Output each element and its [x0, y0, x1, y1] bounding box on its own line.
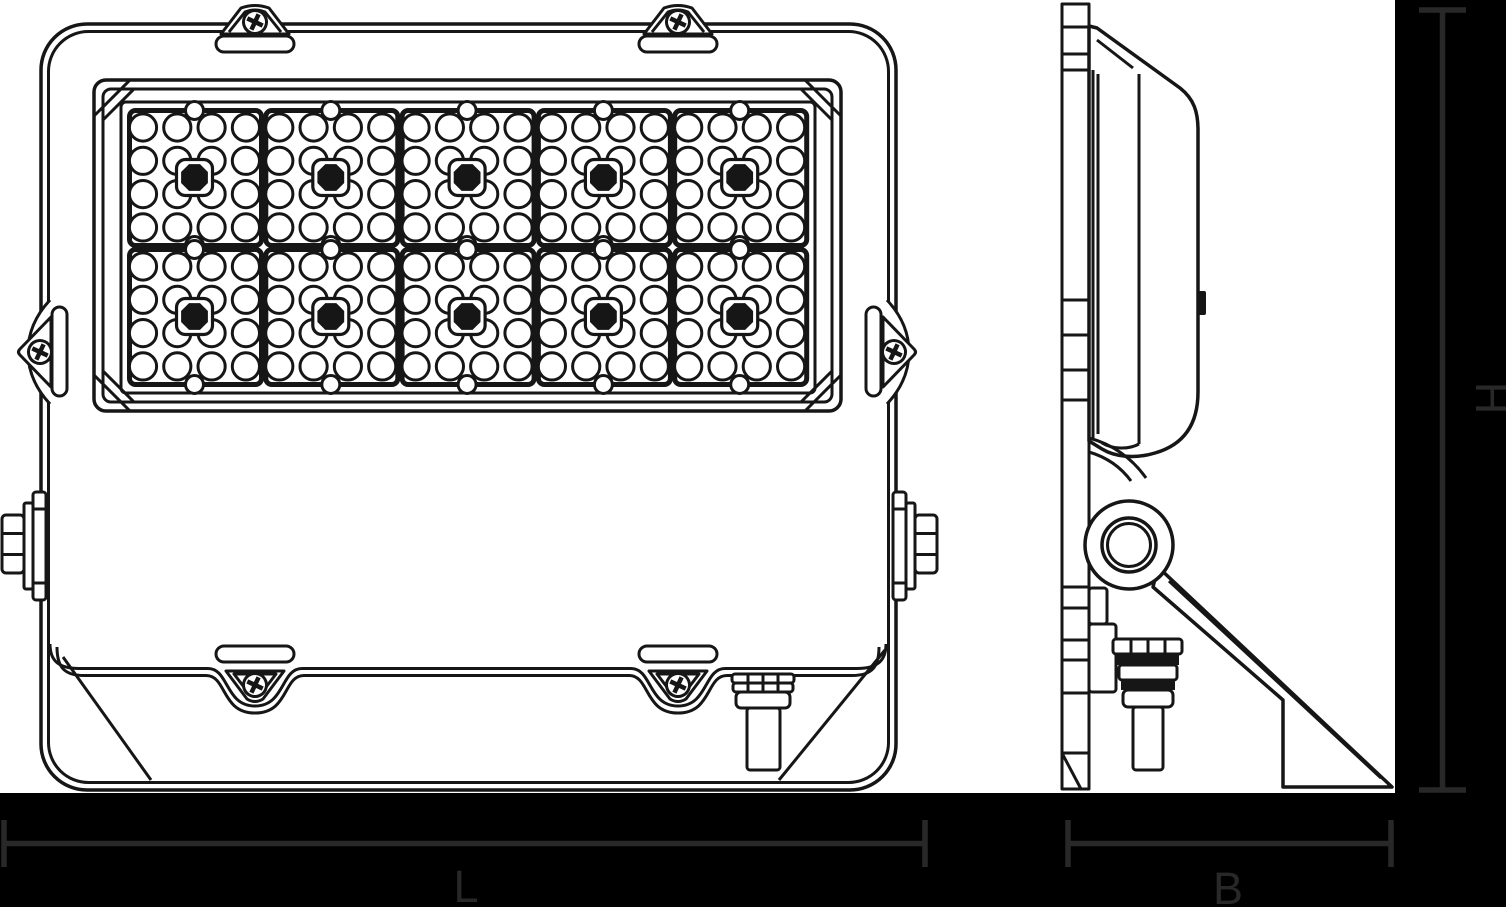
lens [778, 214, 805, 241]
lens [300, 253, 327, 280]
module-notch [458, 102, 476, 120]
lens [505, 353, 532, 380]
lens [675, 147, 702, 174]
led-module [538, 102, 670, 255]
led-chip [726, 303, 753, 330]
lens [334, 114, 361, 141]
lens [369, 114, 396, 141]
lens [641, 114, 668, 141]
lens [402, 353, 429, 380]
lens [300, 214, 327, 241]
module-notch [186, 376, 204, 394]
lens [164, 114, 191, 141]
lens [300, 114, 327, 141]
module-notch [594, 102, 612, 120]
lens [232, 353, 259, 380]
cable-stem [1133, 707, 1163, 770]
lens [402, 286, 429, 313]
lens [369, 147, 396, 174]
lens [266, 320, 293, 347]
led-module [129, 241, 261, 394]
lens [369, 181, 396, 208]
lens [607, 214, 634, 241]
lens [266, 181, 293, 208]
lens [675, 286, 702, 313]
lens [266, 286, 293, 313]
head-clip [1197, 291, 1206, 315]
lens [538, 114, 565, 141]
module-notch [731, 102, 749, 120]
lens [369, 253, 396, 280]
lens [538, 214, 565, 241]
lens [709, 214, 736, 241]
lens [436, 114, 463, 141]
lens [505, 320, 532, 347]
lens [538, 181, 565, 208]
lens [607, 353, 634, 380]
lens [573, 253, 600, 280]
lens [436, 214, 463, 241]
lens [471, 253, 498, 280]
lens [538, 286, 565, 313]
lens [641, 353, 668, 380]
lens [266, 353, 293, 380]
lens [164, 253, 191, 280]
led-module [266, 102, 398, 255]
lens [266, 147, 293, 174]
module-notch [458, 376, 476, 394]
lens [164, 353, 191, 380]
led-chip [454, 164, 481, 191]
lens [778, 286, 805, 313]
led-chip [590, 164, 617, 191]
lens [778, 253, 805, 280]
lens [402, 147, 429, 174]
module-notch [731, 241, 749, 259]
lens [778, 181, 805, 208]
lens [675, 353, 702, 380]
lens [778, 114, 805, 141]
led-chip [181, 303, 208, 330]
lens [198, 253, 225, 280]
lens [129, 320, 156, 347]
lens [641, 147, 668, 174]
lens [505, 286, 532, 313]
lens [709, 253, 736, 280]
lens [198, 114, 225, 141]
lens [471, 214, 498, 241]
lens [641, 286, 668, 313]
module-notch [186, 241, 204, 259]
lens [778, 147, 805, 174]
lens [232, 286, 259, 313]
technical-drawing: L B H [0, 0, 1506, 907]
lens [607, 253, 634, 280]
lens [505, 181, 532, 208]
lens [538, 353, 565, 380]
module-notch [322, 102, 340, 120]
mounting-rail [1062, 4, 1089, 789]
module-notch [322, 376, 340, 394]
lens [300, 353, 327, 380]
lens [436, 253, 463, 280]
lens [505, 214, 532, 241]
module-notch [731, 376, 749, 394]
led-chip [317, 164, 344, 191]
module-notch [458, 241, 476, 259]
lens [129, 114, 156, 141]
lens [369, 286, 396, 313]
lens [198, 214, 225, 241]
lens [129, 181, 156, 208]
lens [129, 253, 156, 280]
led-module [129, 102, 261, 255]
led-module [402, 102, 534, 255]
module-notch [186, 102, 204, 120]
gland-mount-lower [1089, 624, 1116, 692]
lens [641, 181, 668, 208]
dimension-width-label: B [1213, 863, 1243, 907]
lens [573, 353, 600, 380]
lens [232, 147, 259, 174]
module-notch [322, 241, 340, 259]
lens [436, 353, 463, 380]
led-chip [454, 303, 481, 330]
lens [538, 253, 565, 280]
lens [129, 353, 156, 380]
lens [266, 214, 293, 241]
lens [538, 320, 565, 347]
lens [334, 253, 361, 280]
lens [232, 181, 259, 208]
lens [369, 320, 396, 347]
lens [129, 286, 156, 313]
led-module [675, 241, 807, 394]
lens [232, 114, 259, 141]
lens [641, 253, 668, 280]
pivot-joint [1085, 501, 1173, 589]
led-chip [181, 164, 208, 191]
lens [232, 253, 259, 280]
lens [538, 147, 565, 174]
lens [164, 214, 191, 241]
lens [743, 114, 770, 141]
lens [198, 353, 225, 380]
lens [505, 114, 532, 141]
lens [573, 214, 600, 241]
gland-mount [1089, 588, 1107, 624]
lens [369, 353, 396, 380]
lens [471, 353, 498, 380]
lens [369, 214, 396, 241]
lens [709, 353, 736, 380]
lens [129, 214, 156, 241]
led-chip [590, 303, 617, 330]
lens [266, 114, 293, 141]
lens [129, 147, 156, 174]
lens [573, 114, 600, 141]
lens [402, 320, 429, 347]
lens [334, 214, 361, 241]
lamp-head [1089, 26, 1198, 456]
lens [402, 114, 429, 141]
lens [743, 353, 770, 380]
led-chip [726, 164, 753, 191]
cable-gland-side [1113, 639, 1182, 707]
module-notch [594, 241, 612, 259]
lens [743, 253, 770, 280]
lens [778, 353, 805, 380]
lens [607, 114, 634, 141]
led-module [402, 241, 534, 394]
led-chip [317, 303, 344, 330]
lens [402, 181, 429, 208]
lens [402, 214, 429, 241]
lens [675, 320, 702, 347]
lens [232, 214, 259, 241]
lens [505, 253, 532, 280]
module-notch [594, 376, 612, 394]
lens [778, 320, 805, 347]
lens [505, 147, 532, 174]
lens [709, 114, 736, 141]
lens [402, 253, 429, 280]
lens [675, 114, 702, 141]
lens [641, 214, 668, 241]
lens [675, 214, 702, 241]
led-module [266, 241, 398, 394]
drawing-stage: L B H [0, 0, 1506, 907]
lens [232, 320, 259, 347]
lens [266, 253, 293, 280]
lens [675, 253, 702, 280]
led-module [538, 241, 670, 394]
lens [743, 214, 770, 241]
dimension-height-label: H [1466, 382, 1506, 415]
lens [675, 181, 702, 208]
lens [641, 320, 668, 347]
led-module [675, 102, 807, 255]
lens [471, 114, 498, 141]
lens [334, 353, 361, 380]
dimension-length-label: L [453, 861, 478, 907]
led-modules [129, 102, 806, 394]
